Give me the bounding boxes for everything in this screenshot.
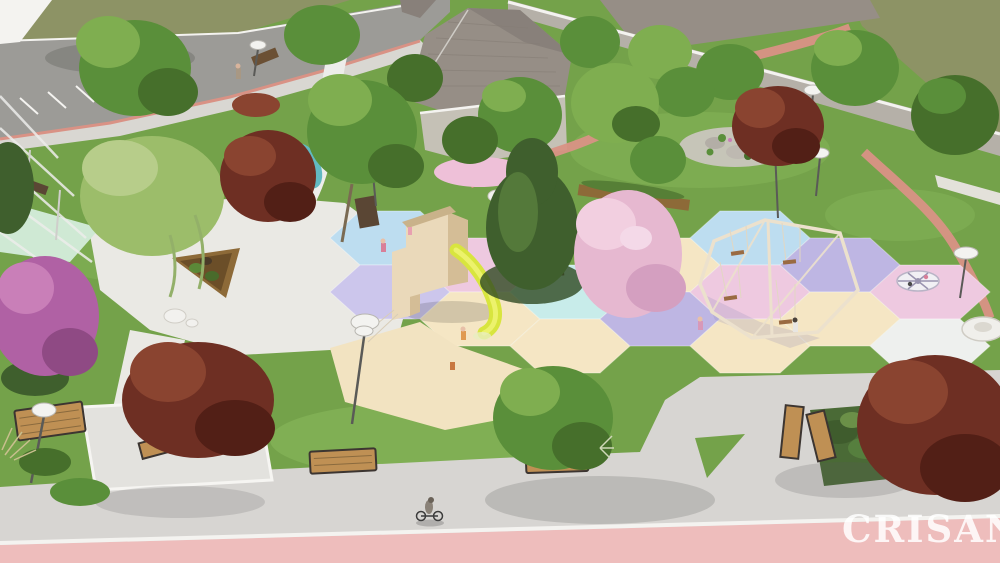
canopy-sparkle <box>620 226 652 250</box>
shrub <box>50 478 110 506</box>
child-near-swings <box>698 317 704 331</box>
child-on-sand <box>450 362 455 370</box>
bench <box>309 448 376 473</box>
canopy-highlight <box>0 262 54 314</box>
conifer-highlight <box>498 172 538 252</box>
slide-exit <box>473 332 491 340</box>
tree-highlight <box>814 30 862 66</box>
canopy-highlight <box>735 88 785 128</box>
canopy-shade <box>195 400 275 456</box>
canopy-shade <box>772 128 820 164</box>
rider <box>924 275 928 279</box>
tree-green <box>442 116 498 164</box>
round-stool <box>186 319 198 327</box>
disc-spinner <box>962 317 1000 341</box>
canopy-highlight <box>868 360 948 424</box>
tree-green <box>560 16 620 68</box>
spinner-hub <box>915 278 921 284</box>
tree-highlight <box>918 78 966 114</box>
tree-green <box>655 67 715 117</box>
lamp-globe <box>954 247 978 259</box>
tree-green <box>284 5 360 65</box>
tree-burgundy <box>220 130 316 222</box>
bench-seat <box>309 448 376 473</box>
canopy-shade <box>368 144 424 188</box>
red-bush <box>232 93 280 117</box>
canopy-shade <box>138 68 198 116</box>
pedestrian <box>236 64 242 80</box>
person-near-swings <box>793 318 799 333</box>
tuft <box>707 149 714 156</box>
tree-shadow <box>95 486 265 518</box>
round-table <box>164 309 186 323</box>
rider-head <box>428 497 434 503</box>
disc-center <box>974 322 992 332</box>
canopy-highlight <box>76 16 140 68</box>
child-on-sand <box>461 327 467 341</box>
flower <box>728 138 732 142</box>
grass-light-patch <box>825 189 975 241</box>
rider <box>908 282 912 286</box>
canopy-shade <box>626 264 686 312</box>
canopy-highlight <box>224 136 276 176</box>
canopy-highlight <box>308 74 372 126</box>
shrub <box>19 448 71 476</box>
tuft <box>718 134 726 142</box>
canopy-shade <box>42 328 98 376</box>
lamp-globe <box>250 41 266 50</box>
child-on-tiles <box>381 239 387 253</box>
watermark: CRISANA <box>842 507 1000 551</box>
tree-shadow <box>485 476 715 524</box>
canopy-shade <box>264 182 316 222</box>
canopy-highlight <box>130 342 206 402</box>
canopy-highlight <box>500 368 560 416</box>
tree-burgundy <box>732 86 824 166</box>
carousel-spinner <box>897 271 939 291</box>
canopy-highlight <box>82 140 158 196</box>
lamp-globe <box>355 326 373 336</box>
tree-green <box>630 136 686 184</box>
planter-shrub <box>189 263 203 273</box>
lamp-globe <box>32 403 56 417</box>
tree-burgundy-large <box>122 342 275 458</box>
park-render: CRISANA <box>0 0 1000 563</box>
render-canvas: CRISANA <box>0 0 1000 563</box>
tree-highlight <box>482 80 526 112</box>
toddler-at-tower <box>408 227 412 235</box>
planter-shrub <box>205 271 219 281</box>
